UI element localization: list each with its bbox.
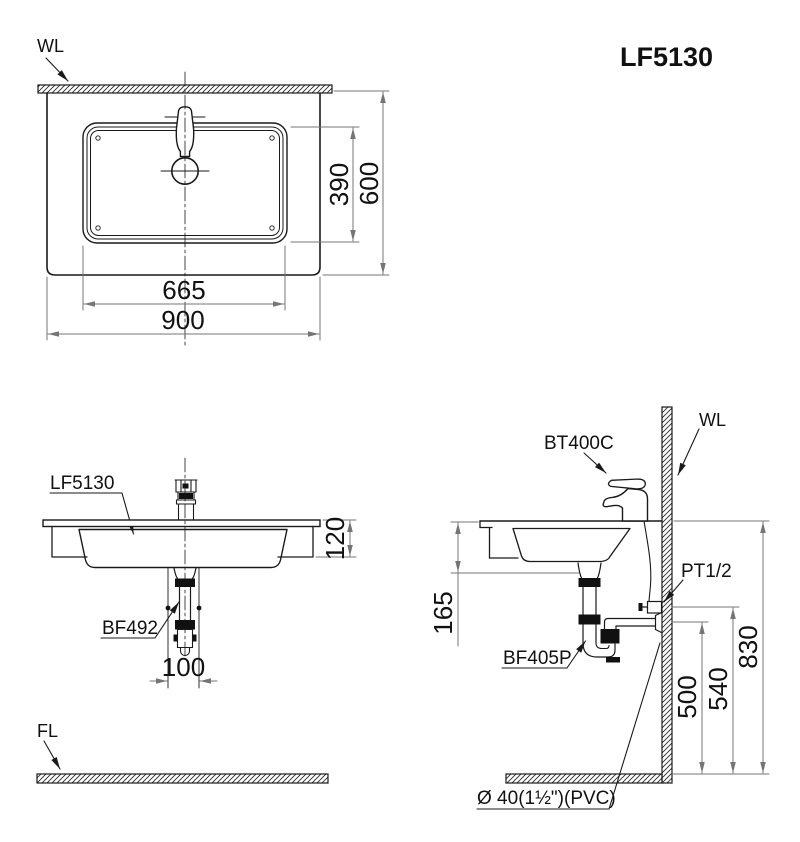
side-angle-valve [648, 602, 662, 614]
side-supply-hose [644, 521, 651, 602]
front-faucet [175, 480, 197, 520]
page-title: LF5130 [620, 42, 713, 72]
side-view: WL BT400C PT1/2 [428, 407, 769, 809]
dim-drain-offset: 100 [162, 652, 205, 682]
dim-drain-height: 500 [672, 675, 702, 718]
side-apron [480, 521, 518, 558]
dim-counter-width: 900 [161, 305, 204, 335]
front-shell [52, 527, 313, 558]
dim-counter-to-trap: 165 [428, 591, 458, 634]
front-supply-end [166, 606, 171, 611]
plan-wall-leader [46, 58, 68, 81]
side-faucet-leader [584, 453, 606, 473]
side-faucet-label: BT400C [544, 433, 614, 454]
floor-leader [44, 741, 60, 769]
side-faucet-body [603, 489, 647, 522]
side-wall-leader [678, 429, 699, 475]
front-view: LF5130 [37, 458, 356, 783]
side-dimensions [451, 521, 769, 774]
side-wall-label: WL [699, 410, 726, 430]
floor-label: FL [37, 721, 58, 741]
dim-basin-height: 120 [320, 517, 350, 560]
technical-drawing: LF5130 WL 665 [0, 0, 800, 842]
plan-corner-mark [270, 226, 274, 230]
dim-counter-depth: 600 [354, 162, 384, 205]
front-supply-end [197, 606, 202, 611]
side-trap-label: BF405P [503, 648, 572, 669]
dim-counter-to-floor: 830 [733, 625, 763, 668]
dim-valve-height: 540 [703, 667, 733, 710]
floor-hatch [37, 774, 328, 783]
side-supply-label: PT1/2 [681, 561, 732, 582]
side-outlet-label: Ø 40(1½")(PVC) [477, 788, 616, 809]
plan-corner-mark [270, 136, 274, 140]
front-product-label: LF5130 [50, 473, 114, 494]
side-bowl [513, 529, 630, 562]
front-drain-label: BF492 [102, 618, 158, 639]
drawing-sheet: LF5130 WL 665 [0, 0, 800, 842]
plan-corner-mark [96, 136, 100, 140]
plan-view: WL 665 900 390 600 [37, 36, 389, 345]
dim-basin-width: 665 [162, 275, 205, 305]
side-faucet-lever [608, 479, 645, 489]
front-product-leader [50, 493, 134, 534]
plan-wall-label: WL [37, 36, 64, 56]
dim-basin-depth: 390 [324, 163, 354, 206]
plan-corner-mark [96, 226, 100, 230]
side-floor-hatch [506, 774, 662, 783]
front-counter [43, 520, 320, 527]
plan-dimensions [47, 91, 389, 340]
front-bowl [79, 530, 287, 568]
